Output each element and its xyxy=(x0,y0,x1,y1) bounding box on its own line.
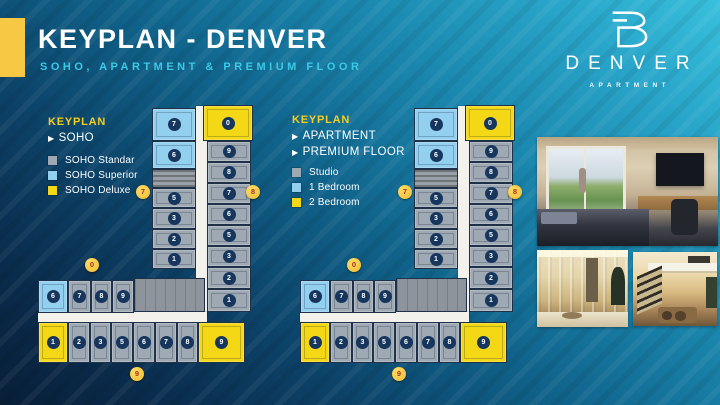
unit-number-badge: 8 xyxy=(485,166,498,179)
unit-8: 8 xyxy=(177,322,198,363)
unit-number-badge: 6 xyxy=(430,149,443,162)
keyplan-slide: KEYPLAN - DENVER SOHO, APARTMENT & PREMI… xyxy=(0,0,720,405)
photo-mezzanine-furniture xyxy=(688,256,710,263)
arrow-right-icon: ▶ xyxy=(292,148,299,157)
unit-number-badge: 5 xyxy=(485,229,498,242)
unit-number-badge: 5 xyxy=(430,192,443,205)
unit-number-badge: 6 xyxy=(309,290,322,303)
unit-number-badge: 7 xyxy=(160,336,173,349)
unit-7: 7 xyxy=(155,322,177,363)
corridor xyxy=(300,312,469,322)
unit-number-badge: 9 xyxy=(215,336,228,349)
unit-number-badge: 3 xyxy=(94,336,107,349)
unit-number-badge: 2 xyxy=(335,336,348,349)
service-core xyxy=(396,278,467,312)
unit-6: 6 xyxy=(414,141,458,169)
photo-loft-living-room xyxy=(633,252,717,326)
unit-number-badge: 1 xyxy=(485,294,498,307)
unit-0: 0 xyxy=(465,105,515,141)
unit-3: 3 xyxy=(469,246,513,267)
unit-number-badge: 3 xyxy=(223,250,236,263)
unit-number-badge: 9 xyxy=(223,145,236,158)
unit-7: 7 xyxy=(330,280,353,313)
unit-6: 6 xyxy=(152,141,196,169)
unit-number-badge: 2 xyxy=(73,336,86,349)
unit-number-badge: 8 xyxy=(181,336,194,349)
unit-number-badge: 3 xyxy=(430,212,443,225)
photo-entry-hallway xyxy=(537,250,628,327)
unit-5: 5 xyxy=(469,225,513,246)
unit-6: 6 xyxy=(38,280,68,313)
unit-9: 9 xyxy=(198,322,245,363)
photo-wall-tv xyxy=(656,153,703,186)
unit-6: 6 xyxy=(207,204,251,225)
unit-1: 1 xyxy=(38,322,68,363)
unit-7: 7 xyxy=(469,183,513,204)
unit-number-badge: 1 xyxy=(309,336,322,349)
unit-3: 3 xyxy=(90,322,111,363)
unit-number-badge: 6 xyxy=(223,208,236,221)
grid-marker-top: 0 xyxy=(85,258,99,272)
unit-number-badge: 7 xyxy=(223,187,236,200)
photo-plant xyxy=(706,277,717,308)
unit-9: 9 xyxy=(112,280,134,313)
stair-core xyxy=(414,169,458,188)
corridor xyxy=(38,312,207,322)
unit-number-badge: 6 xyxy=(400,336,413,349)
unit-number-badge: 1 xyxy=(223,294,236,307)
grid-marker-right: 8 xyxy=(246,185,260,199)
unit-2: 2 xyxy=(152,229,196,249)
unit-number-badge: 7 xyxy=(168,118,181,131)
unit-number-badge: 7 xyxy=(73,290,86,303)
unit-number-badge: 2 xyxy=(223,272,236,285)
unit-2: 2 xyxy=(330,322,352,363)
unit-number-badge: 2 xyxy=(485,272,498,285)
unit-9: 9 xyxy=(469,141,513,162)
photo-bedroom-with-workspace xyxy=(537,137,718,246)
unit-number-badge: 9 xyxy=(485,145,498,158)
unit-number-badge: 6 xyxy=(138,336,151,349)
unit-number-badge: 1 xyxy=(47,336,60,349)
grid-marker-left: 7 xyxy=(136,185,150,199)
unit-number-badge: 2 xyxy=(168,233,181,246)
unit-number-badge: 8 xyxy=(357,290,370,303)
unit-2: 2 xyxy=(414,229,458,249)
unit-8: 8 xyxy=(353,280,374,313)
unit-number-badge: 0 xyxy=(484,117,497,130)
photo-pouf xyxy=(675,311,686,321)
photo-person-silhouette xyxy=(579,168,586,193)
unit-7: 7 xyxy=(207,183,251,204)
unit-number-badge: 8 xyxy=(95,290,108,303)
unit-number-badge: 7 xyxy=(485,187,498,200)
floorplan-soho: 7653210987653216789123567897809 xyxy=(38,100,260,392)
unit-8: 8 xyxy=(207,162,251,183)
grid-marker-right: 8 xyxy=(508,185,522,199)
logo-name: DENVER xyxy=(545,53,710,75)
logo-tagline: APARTMENT xyxy=(545,82,710,89)
unit-1: 1 xyxy=(469,289,513,312)
denver-monogram-icon xyxy=(605,8,651,50)
grid-marker-bottom: 9 xyxy=(130,367,144,381)
unit-number-badge: 6 xyxy=(168,149,181,162)
unit-number-badge: 1 xyxy=(430,253,443,266)
unit-5: 5 xyxy=(152,188,196,208)
grid-marker-left: 7 xyxy=(398,185,412,199)
unit-number-badge: 7 xyxy=(430,118,443,131)
unit-number-badge: 5 xyxy=(378,336,391,349)
service-core xyxy=(134,278,205,312)
unit-7: 7 xyxy=(417,322,439,363)
unit-6: 6 xyxy=(133,322,155,363)
unit-1: 1 xyxy=(152,249,196,269)
unit-number-badge: 5 xyxy=(168,192,181,205)
unit-number-badge: 5 xyxy=(116,336,129,349)
unit-5: 5 xyxy=(111,322,133,363)
photo-pouf xyxy=(662,311,672,320)
denver-logo: DENVER APARTMENT xyxy=(545,8,710,89)
unit-number-badge: 5 xyxy=(223,229,236,242)
page-subtitle: SOHO, APARTMENT & PREMIUM FLOOR xyxy=(40,61,362,73)
photo-plant xyxy=(611,267,626,306)
photo-mirror-column xyxy=(586,258,598,303)
unit-number-badge: 2 xyxy=(430,233,443,246)
unit-5: 5 xyxy=(207,225,251,246)
unit-6: 6 xyxy=(395,322,417,363)
unit-7: 7 xyxy=(68,280,91,313)
unit-number-badge: 9 xyxy=(477,336,490,349)
unit-number-badge: 7 xyxy=(422,336,435,349)
unit-8: 8 xyxy=(439,322,460,363)
unit-number-badge: 6 xyxy=(485,208,498,221)
photo-pillows xyxy=(541,212,577,224)
unit-number-badge: 0 xyxy=(222,117,235,130)
unit-5: 5 xyxy=(373,322,395,363)
unit-3: 3 xyxy=(152,208,196,229)
unit-9: 9 xyxy=(207,141,251,162)
unit-7: 7 xyxy=(152,108,196,141)
unit-number-badge: 3 xyxy=(485,250,498,263)
unit-3: 3 xyxy=(414,208,458,229)
unit-1: 1 xyxy=(300,322,330,363)
unit-7: 7 xyxy=(414,108,458,141)
unit-number-badge: 7 xyxy=(335,290,348,303)
corner-accent-square xyxy=(0,18,25,77)
grid-marker-top: 0 xyxy=(347,258,361,272)
unit-2: 2 xyxy=(68,322,90,363)
unit-1: 1 xyxy=(414,249,458,269)
unit-number-badge: 9 xyxy=(379,290,392,303)
unit-number-badge: 8 xyxy=(223,166,236,179)
unit-number-badge: 3 xyxy=(168,212,181,225)
unit-number-badge: 8 xyxy=(443,336,456,349)
unit-3: 3 xyxy=(207,246,251,267)
unit-1: 1 xyxy=(207,289,251,312)
unit-number-badge: 6 xyxy=(47,290,60,303)
grid-marker-bottom: 9 xyxy=(392,367,406,381)
photo-floor xyxy=(537,312,628,327)
page-title: KEYPLAN - DENVER xyxy=(38,24,328,55)
arrow-right-icon: ▶ xyxy=(292,132,299,141)
unit-3: 3 xyxy=(352,322,373,363)
unit-9: 9 xyxy=(460,322,507,363)
unit-9: 9 xyxy=(374,280,396,313)
stair-core xyxy=(152,169,196,188)
floorplan-apartment-premium: 7653210987653216789123567897809 xyxy=(300,100,522,392)
unit-number-badge: 1 xyxy=(168,253,181,266)
unit-8: 8 xyxy=(469,162,513,183)
unit-0: 0 xyxy=(203,105,253,141)
unit-2: 2 xyxy=(207,267,251,289)
unit-6: 6 xyxy=(300,280,330,313)
unit-6: 6 xyxy=(469,204,513,225)
unit-8: 8 xyxy=(91,280,112,313)
unit-5: 5 xyxy=(414,188,458,208)
unit-2: 2 xyxy=(469,267,513,289)
photo-office-chair xyxy=(671,199,698,235)
unit-number-badge: 9 xyxy=(117,290,130,303)
unit-number-badge: 3 xyxy=(356,336,369,349)
photo-ceiling-light xyxy=(537,250,628,257)
